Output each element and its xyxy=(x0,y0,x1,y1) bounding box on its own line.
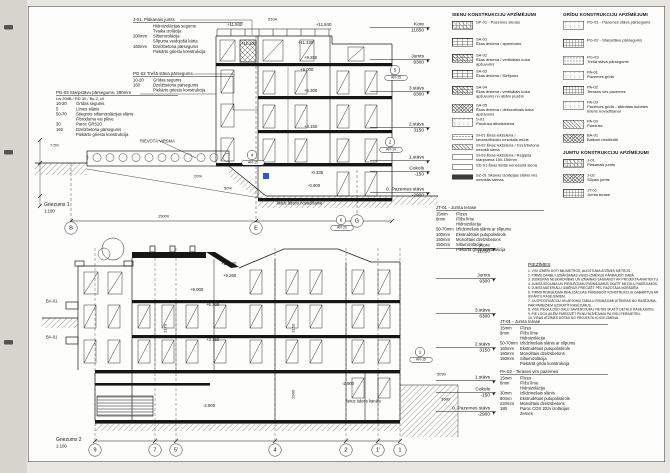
level-marker: 1.stāvs▼ xyxy=(370,155,430,161)
callout-title: PG-02 Trešā stāva pārsegums xyxy=(133,71,233,77)
level-marker: Kore▼11850 xyxy=(370,22,430,33)
callout-row: Piekārto griestu konstrukcija xyxy=(133,49,243,54)
legend-item: BA-01Balkoni nesiltināti xyxy=(563,134,651,147)
callout-title: PA-02 - Terases virs pazemes xyxy=(500,369,608,375)
detail-marker-code: AR-20 xyxy=(331,225,354,231)
detail-marker: 4AR-15 xyxy=(247,150,257,160)
grid-bubble: E xyxy=(250,222,263,235)
callout-row: Piekārto griestu konstrukcija xyxy=(56,132,178,137)
legend-swatch xyxy=(563,86,584,95)
legend-swatch xyxy=(452,165,473,170)
annotation-label: BA-01 xyxy=(46,299,57,304)
legend-swatch xyxy=(563,21,584,30)
legend-item: PA-02Terases virs pazemes xyxy=(563,86,651,101)
legend-swatch xyxy=(452,135,473,140)
elevation-label: -0.335 xyxy=(311,170,323,175)
level-value: 3150 xyxy=(370,128,430,134)
callout-block: JT-01 - Jumta terase15mmFlīzes8mmFlīžu l… xyxy=(500,319,608,366)
callout-row: Zemes xyxy=(500,411,608,416)
level-value: 9300 xyxy=(436,279,496,285)
callout-block: PA-02 - Terases virs pazemes15mmFlīzes8m… xyxy=(500,369,608,416)
elevation-label: +11.200 xyxy=(221,261,236,266)
legend-desc: Pandusa atbalstsiena xyxy=(476,122,540,126)
detail-marker: 5AR-15 xyxy=(390,65,400,75)
grid-bubble: 4 xyxy=(269,444,282,457)
dimension-label: 2900 xyxy=(291,390,296,399)
legend: GRĪDU KONSTRUKCIJU APZĪMĒJUMIPG-01 - Paz… xyxy=(563,12,651,147)
annotation-label: lietus ūdeņu novadīšanai xyxy=(277,201,322,206)
level-marker: 0. Pazemes stāvs▼-2900 xyxy=(370,187,430,198)
legend-swatch xyxy=(563,56,584,65)
elevation-label: +6.300 xyxy=(206,302,219,307)
legend-text: BA-01Balkoni nesiltināti xyxy=(587,134,651,143)
grid-bubble: 9 xyxy=(89,444,102,457)
legend-text: PA-03Pazemes grīda - siltinātas kubetes … xyxy=(587,101,651,114)
elevation-label: +3.150 xyxy=(304,124,317,129)
legend-swatch xyxy=(563,189,584,198)
legend-item: J-02Slīpais jumts xyxy=(563,174,651,189)
legend-swatch xyxy=(452,175,473,180)
legend-text: PG-02 - Starpstāvu pārsegums xyxy=(587,39,651,43)
level-label: 0. Pazemes stāvs xyxy=(452,406,490,411)
elevation-label: +11.330 xyxy=(298,40,313,45)
legend-desc: Trešā stāva pārsegums xyxy=(587,60,651,64)
callout-title: JT-01 - Jumta terase xyxy=(436,205,544,211)
legend-item: SA-03Ēkas ārsiena / flīzējums xyxy=(452,70,540,86)
detail-marker-code: AR-15 xyxy=(410,357,433,363)
legend-swatch xyxy=(452,118,473,127)
legend-item: PG-03Trešā stāva pārsegums xyxy=(563,56,651,71)
level-marker: Jumts▼9300 xyxy=(370,54,430,65)
level-marker: 3.stāvs▼6300 xyxy=(436,308,496,319)
elevation-label: +9.260 xyxy=(304,55,317,60)
legend-swatch xyxy=(563,134,584,143)
detail-marker: 1AR-15 xyxy=(415,347,425,357)
level-value: 6300 xyxy=(370,92,430,98)
legend-desc: Jumta terase xyxy=(587,193,651,197)
legend-text: SP-01 - Pazemes sienas xyxy=(476,21,540,25)
section2-title-label: Griezums 2 xyxy=(56,437,82,443)
callout-value xyxy=(500,361,518,366)
dimension-label: 15000 xyxy=(158,214,169,219)
callout-value xyxy=(56,132,74,137)
grid-bubble: 5' xyxy=(170,444,183,457)
legend-text: PA-01Pazemes grīda xyxy=(587,71,651,80)
level-marker: Kore▼11850 xyxy=(436,243,496,254)
legend-swatch xyxy=(563,71,584,80)
detail-marker: 2AR-14 xyxy=(385,137,395,147)
legend-item: SP-01 - Pazemes sienas xyxy=(452,21,540,38)
notes-block: PIEZĪMES1. VISI IZMĒRI DOTI MILIMETROS, … xyxy=(528,262,664,321)
elevation-label: +11.840 xyxy=(227,22,242,27)
level-value: 6300 xyxy=(436,314,496,320)
legend-item: S-01Pandusa atbalstsiena xyxy=(452,118,540,134)
elevation-label: +9.260 xyxy=(223,273,236,278)
legend-desc: Pazemes grīda - siltinātas kubetes ūdens… xyxy=(587,105,651,114)
legend-item: SI-03 Ēkas iekšsiena / Reģipša starpsien… xyxy=(452,154,540,164)
legend-text: SI-03 Ēkas iekšsiena / Reģipša starpsien… xyxy=(476,154,540,163)
level-value: 11850 xyxy=(370,28,430,34)
legend-item: SI-01 Ēkas iekšsiena / keramzītbloku nes… xyxy=(452,134,540,144)
level-label: 1.stāvs xyxy=(475,375,490,380)
elevation-label: +11.840 xyxy=(316,22,331,27)
level-line: 1.stāvs▼ xyxy=(370,155,430,161)
legend-item: PG-02 - Starpstāvu pārsegums xyxy=(563,39,651,56)
legend-text: PA-02Terases virs pazemes xyxy=(587,86,651,95)
level-label: 3.stāvs xyxy=(475,308,490,313)
legend-text: PG-03Trešā stāva pārsegums xyxy=(587,56,651,65)
level-label: Cokols xyxy=(409,166,424,171)
note-line: 10. VISAS ATZĪMES DOTAS NO PROJEKTA ±0.0… xyxy=(528,317,664,321)
legend-item: JT-01Jumta terase xyxy=(563,189,651,204)
level-marker: 2.stāvs▼3150 xyxy=(370,122,430,133)
legend-text: S-01Pandusa atbalstsiena xyxy=(476,118,540,127)
legend-text: SD-01 Ēkas lietās nenesošā siena xyxy=(476,164,540,168)
note-line: 7. JA SPECIFIKĀCIJU UN APJOMU TABULU RIS… xyxy=(528,299,664,308)
annotation-label: RIEVOTĀ VIRSMA xyxy=(140,139,175,144)
dimension-label: 20% xyxy=(194,174,202,179)
legend-item: SI-02 Ēkas iekšsiena / Dzelzbetona nesoš… xyxy=(452,144,540,154)
legend-swatch xyxy=(563,101,584,110)
level-value: -150 xyxy=(370,172,430,178)
legend-item: PG-01 - Pazemes stāva pārsegums xyxy=(563,21,651,39)
legend-text: J-01Plakanais jumts xyxy=(587,159,651,168)
grid-bubble: 7 xyxy=(149,444,162,457)
level-marker: Jumts▼9300 xyxy=(436,273,496,284)
elevation-label: +6.300 xyxy=(304,88,317,93)
legend-desc: Ēkas ārsiena / vertikālais koka apšuvums xyxy=(476,58,540,67)
legend: SIENU KONSTRUKCIJU APZĪMĒJUMISP-01 - Paz… xyxy=(452,12,540,184)
legend-text: SA-02Ēkas ārsiena / vertikālais koka apš… xyxy=(476,54,540,67)
elevation-label: +3.150 xyxy=(206,337,219,342)
level-marker: 0. Pazemes stāvs▼-2900 xyxy=(436,406,496,417)
legend-desc: Ēkas ārsiena / flīzējums xyxy=(476,74,540,78)
callout-text: Piekārto griestu konstrukcija xyxy=(153,49,205,54)
legend-item: SZ-01 Skaņas izolācijas slānis virs neso… xyxy=(452,174,540,184)
linework xyxy=(35,20,458,443)
level-value: 11850 xyxy=(436,249,496,255)
legend-text: SA-04Ēkas ārsiena / vertikālais koka apš… xyxy=(476,86,540,99)
section1-title-label: Griezums 1 xyxy=(44,202,70,208)
legend-text: J-02Slīpais jumts xyxy=(587,174,651,183)
elevation-label: +9.000 xyxy=(300,67,313,72)
callout-title: PG-03 Starpstāvu pārsegums, 280mm xyxy=(56,90,178,96)
level-label: Kore xyxy=(480,243,490,248)
legend-item: SD-01 Ēkas lietās nenesošā siena xyxy=(452,164,540,174)
elevation-label: -2.900 xyxy=(342,381,354,386)
legend-swatch xyxy=(452,104,473,113)
dimension-label: 5104 xyxy=(268,17,277,22)
callout-text: Piekārto griestu konstrukcija xyxy=(76,132,128,137)
legend-text: SI-01 Ēkas iekšsiena / keramzītbloku nes… xyxy=(476,134,540,143)
dimension-label: 3150 xyxy=(291,324,296,333)
level-label: Cokols xyxy=(475,387,490,392)
legend-swatch xyxy=(452,145,473,150)
notes-title: PIEZĪMES xyxy=(528,262,664,268)
legend-item: PA-01Pazemes grīda xyxy=(563,71,651,86)
dimension-label: 5090 xyxy=(437,372,446,377)
grid-bubble: 1 xyxy=(394,444,407,457)
level-value: 3150 xyxy=(436,348,496,354)
legend-text: SA-01Ēkas ārsiena / apmetums xyxy=(476,38,540,47)
legend-header: JUMTU KONSTRUKCIJU APZĪMĒJUMI xyxy=(563,150,651,155)
level-value: 9300 xyxy=(370,60,430,66)
callout-value xyxy=(133,49,151,54)
level-label: 2.stāvs xyxy=(409,122,424,127)
legend-swatch xyxy=(452,155,473,160)
legend-desc: Balkoni nesiltināti xyxy=(587,138,651,142)
callout-value xyxy=(500,411,518,416)
level-label: Jumts xyxy=(411,54,424,59)
level-value: -2900 xyxy=(436,412,496,418)
legend-desc: Plakanais jumts xyxy=(587,163,651,167)
detail-marker-code: AR-15 xyxy=(242,160,265,166)
sheet-scale-wrapper: Griezums 1 1:100 Griezums 2 1:100 J-01. … xyxy=(0,0,670,473)
legend-text: SA-05Ēkas ārsiena / dekoratīvais koka ap… xyxy=(476,104,540,117)
grid-bubble: B xyxy=(65,222,78,235)
annotation-label: BA-01 xyxy=(46,335,57,340)
level-label: Jumts xyxy=(477,273,490,278)
legend-swatch xyxy=(452,86,473,95)
legend-text: SI-02 Ēkas iekšsiena / Dzelzbetona nesoš… xyxy=(476,144,540,153)
level-label: Kore xyxy=(414,22,424,27)
legend-desc: Terases virs pazemes xyxy=(587,90,651,94)
section1-title-scale: 1:100 xyxy=(44,208,55,213)
level-label: 2.stāvs xyxy=(475,342,490,347)
detail-marker: 6AR-20 xyxy=(336,215,346,225)
detail-marker-code: AR-15 xyxy=(385,75,408,81)
callout-text: Piekārtā grīda konstrukcija xyxy=(520,361,569,366)
level-label: 1.stāvs xyxy=(409,155,424,160)
dimension-label: 50% xyxy=(224,186,232,191)
legend-item: SA-01Ēkas ārsiena / apmetums xyxy=(452,38,540,54)
legend: JUMTU KONSTRUKCIJU APZĪMĒJUMIJ-01Plakana… xyxy=(563,150,651,204)
legend-item: PA-03Pazemes grīda - siltinātas kubetes … xyxy=(563,101,651,120)
legend-swatch xyxy=(452,70,473,79)
section1-title: Griezums 1 1:100 xyxy=(44,202,70,215)
callout-row: Piekārtā grīda konstrukcija xyxy=(500,361,608,366)
legend-swatch xyxy=(452,21,473,30)
elevation-label: -0.900 xyxy=(308,183,320,188)
legend-text: PG-01 - Pazemes stāva pārsegums xyxy=(587,21,651,25)
note-line: 6. PIRMS RISINĀJUMA REALIZĀCIJAS PĀRBAUD… xyxy=(528,291,664,300)
legend-swatch xyxy=(452,38,473,47)
elevation-label: +9.000 xyxy=(190,287,203,292)
callout-block: PG-03 Starpstāvu pārsegums, 280mmLw 20dB… xyxy=(56,90,178,137)
level-marker: Cokols▼-150 xyxy=(370,166,430,177)
callout-text: Zemes xyxy=(520,411,533,416)
legend-item: PA-03Panduss xyxy=(563,120,651,134)
legend-text: SA-03Ēkas ārsiena / flīzējums xyxy=(476,70,540,79)
section2-title-scale: 1:100 xyxy=(56,443,67,448)
legend-header: SIENU KONSTRUKCIJU APZĪMĒJUMI xyxy=(452,12,540,17)
legend-text: SZ-01 Skaņas izolācijas slānis virs neso… xyxy=(476,174,540,183)
legend-swatch xyxy=(452,54,473,63)
legend-text: PA-03Panduss xyxy=(587,120,651,129)
legend-swatch xyxy=(563,159,584,168)
elevation-label: +11.330 xyxy=(241,41,256,46)
legend-swatch xyxy=(563,120,584,129)
legend-desc: Ēkas ārsiena / dekoratīvais koka apšuvum… xyxy=(476,108,540,117)
legend-desc: Slīpais jumts xyxy=(587,178,651,182)
legend-item: SA-04Ēkas ārsiena / vertikālais koka apš… xyxy=(452,86,540,104)
level-marker: 2.stāvs▼3150 xyxy=(436,342,496,353)
grid-bubble: 1' xyxy=(372,444,385,457)
level-label: 0. Pazemes stāvs xyxy=(386,187,424,192)
detail-marker-code: AR-14 xyxy=(380,147,403,153)
legend-item: J-01Plakanais jumts xyxy=(563,159,651,174)
scanned-drawing-sheet: Griezums 1 1:100 Griezums 2 1:100 J-01. … xyxy=(0,0,670,473)
legend-item: SA-05Ēkas ārsiena / dekoratīvais koka ap… xyxy=(452,104,540,118)
legend-desc: Ēkas ārsiena / vertikālais koka apšuvums… xyxy=(476,90,540,99)
legend-desc: Pazemes grīda xyxy=(587,75,651,79)
level-value: -2900 xyxy=(370,193,430,199)
legend-item: SA-02Ēkas ārsiena / vertikālais koka apš… xyxy=(452,54,540,70)
dimension-label: 2170 xyxy=(163,324,168,333)
section2-title: Griezums 2 1:100 xyxy=(56,437,82,450)
annotation-label: lietus ūdens kanāls xyxy=(346,399,381,404)
legend-swatch xyxy=(563,39,584,48)
legend-desc: Panduss xyxy=(587,124,651,128)
legend-swatch xyxy=(563,174,584,183)
grid-bubble: 2 xyxy=(340,444,353,457)
level-marker: 3.stāvs▼6300 xyxy=(370,86,430,97)
dimension-label: 3080 xyxy=(441,397,450,402)
legend-header: GRĪDU KONSTRUKCIJU APZĪMĒJUMI xyxy=(563,12,651,17)
legend-text: JT-01Jumta terase xyxy=(587,189,651,198)
legend-desc: Ēkas ārsiena / apmetums xyxy=(476,42,540,46)
dimension-label: 7.5% xyxy=(50,143,59,148)
elevation-label: -2.900 xyxy=(203,403,215,408)
level-label: 3.stāvs xyxy=(409,86,424,91)
